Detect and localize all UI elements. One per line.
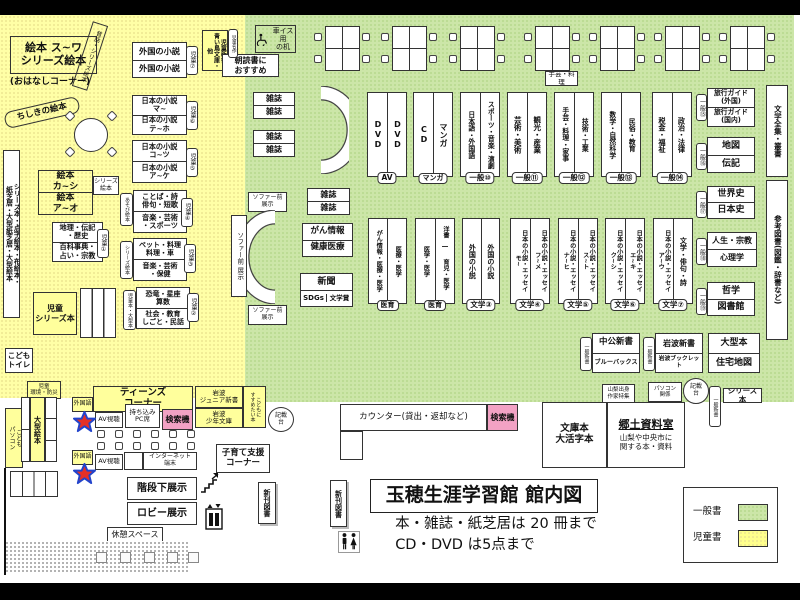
shelf-label: 大型本 bbox=[709, 334, 759, 353]
shelf-label: 図書館 bbox=[708, 299, 754, 316]
shelf-general-10: 日本語・外国語 スポーツ・音楽・演劇 一般⑩ bbox=[460, 92, 500, 177]
shelf-tag: 一般⑪ bbox=[512, 172, 543, 184]
chair bbox=[381, 33, 389, 41]
shelf-label: 育児・医学 bbox=[442, 246, 449, 303]
shelf-label: 文学全集・叢書 bbox=[773, 105, 782, 158]
chair bbox=[719, 55, 727, 63]
shelf-label: 児童 シリーズ本 bbox=[35, 304, 75, 322]
shelf-label: 日本の小説・エッセイ モ~ bbox=[511, 219, 530, 303]
av-viewing-seat: AV視聴 bbox=[95, 454, 123, 470]
av-viewing-seat: AV視聴 bbox=[95, 412, 123, 428]
tag-general-18: 一般⑱ bbox=[696, 238, 707, 265]
shelf-medical-1: がん情報・医療・医学 医療・医学 医育 bbox=[368, 218, 407, 304]
shelf-label: 岩波 少年文庫 bbox=[206, 411, 232, 426]
rest-seat bbox=[120, 552, 131, 563]
shelf-japanese-novels-4: 日本の小説・エッセイ モ~ 日本の小説・エッセイ フ~メ 文学④ bbox=[510, 218, 550, 304]
shelf-label: ペット・料理 料理・車 bbox=[134, 239, 186, 259]
shelf-words-poetry-kids: ことば・詩 俳句・短歌 音楽・芸術 ・スポーツ bbox=[133, 190, 187, 233]
shelf-label: 税金・福祉 bbox=[653, 93, 672, 176]
tag-general-16: 一般⑯ bbox=[696, 143, 707, 170]
shelf-new-books: 新刊図書 bbox=[330, 480, 347, 527]
shelf-kids-series-books: 児童 シリーズ本 bbox=[33, 292, 77, 335]
shelf-label: 日本の小説 マ~ bbox=[133, 96, 186, 115]
tag-label: 一般⑲ bbox=[699, 293, 705, 311]
shelf-tag: 一般⑬ bbox=[606, 172, 637, 184]
star-marker-icon bbox=[73, 410, 96, 433]
chair bbox=[97, 430, 105, 438]
shelf-label: 芸術・美術 bbox=[508, 93, 527, 176]
shelf-medical-2: 医学・医学 洋書 育児・医学 医育 bbox=[415, 218, 455, 304]
shelf-label: 心理学 bbox=[708, 249, 756, 266]
map-title: 玉穂生涯学習館 館内図 bbox=[370, 479, 598, 513]
tag-label: 児童名作 bbox=[231, 35, 236, 53]
shelf-label: 観光・産業 bbox=[527, 93, 547, 176]
shelf-label: 日本史 bbox=[708, 202, 754, 218]
shelf-label: 社会・教育 しごと・民話 bbox=[137, 308, 189, 329]
shelf-label: 日本の小説 テ~ホ bbox=[133, 115, 186, 135]
cell bbox=[46, 418, 56, 439]
rest-seat bbox=[144, 552, 155, 563]
shelf-tag: 一般⑫ bbox=[559, 172, 590, 184]
shelf-label: 音楽・芸術 ・保健 bbox=[134, 259, 186, 280]
tag-general-shinsho: 一般新書 bbox=[643, 337, 655, 371]
shelf-series-books: シリーズ本 bbox=[723, 388, 762, 403]
label: 記載 台 bbox=[690, 384, 702, 398]
chair bbox=[362, 55, 370, 63]
chair bbox=[497, 33, 505, 41]
shelf-series-braille-books: シリーズ本・点字絵本・布絵本・ 紙芝居・大型紙芝居・大型絵本 bbox=[3, 150, 20, 318]
writing-stand: 記載 台 bbox=[268, 407, 294, 432]
tag-jido-5: 児童⑤ bbox=[186, 148, 198, 177]
tag-general-19: 一般⑲ bbox=[696, 288, 707, 315]
chair bbox=[314, 55, 322, 63]
chair bbox=[429, 55, 437, 63]
shelf-chuko-shinsho: 中公新書 ブルーバックス bbox=[592, 333, 640, 373]
shelf-recommended-for-kids: こどもに すすめたい本 bbox=[243, 386, 266, 428]
shelf-reference-books: 参考図書(図鑑・辞書など) bbox=[766, 180, 788, 340]
label: こども パソコン bbox=[7, 426, 21, 450]
shelf-tag: 文学④ bbox=[515, 299, 544, 311]
chair bbox=[133, 442, 141, 450]
byod-pc-seat: 持ち込み PC席 bbox=[125, 404, 160, 428]
shelf-label: パソコン 関係 bbox=[654, 386, 676, 399]
stairs-icon bbox=[199, 472, 221, 494]
legend-row-children: 児童書 bbox=[684, 530, 777, 547]
shelf-label: 政治・法律 bbox=[672, 93, 692, 176]
tag-jido-7: 児童⑦ bbox=[186, 46, 198, 75]
shelf-foreign-novels: 外国の小説 外国の小説 文学③ bbox=[462, 218, 500, 304]
chair bbox=[187, 442, 195, 450]
shelf-general-14: 税金・福祉 政治・法律 一般⑭ bbox=[652, 92, 692, 177]
floor-map: 絵本 ス~ワ シリーズ絵本 昔話・シリーズ絵本 (おはなしコーナー) ちしきの絵… bbox=[0, 0, 800, 600]
label: (おはなしコーナー) bbox=[10, 77, 90, 87]
shelf-label: 岩波 ジュニア新書 bbox=[200, 390, 239, 405]
shelf-label: 中公新書 bbox=[593, 334, 639, 353]
tag-general-shinsho: 一般新書 bbox=[709, 386, 721, 427]
shelf-label: 大型絵本 bbox=[33, 416, 41, 444]
tag-label: 児童⑥ bbox=[189, 106, 195, 125]
counter-label: カウンター(貸出・返却など) bbox=[359, 413, 468, 423]
shelf-newspapers: 新聞 SDGs 文学賞 bbox=[300, 273, 353, 307]
shelf-label: がん情報 bbox=[303, 224, 352, 240]
shelf-label: 文庫本 大活字本 bbox=[555, 424, 593, 446]
shelf-label: 雑誌 bbox=[254, 93, 294, 105]
shelf-tag: 一般⑩ bbox=[465, 172, 494, 184]
tag-shugei-ryori: 手芸・料理 bbox=[545, 71, 578, 86]
map-legend: 一般書 児童書 bbox=[683, 487, 778, 563]
shelf-label: 外国の小説 bbox=[463, 219, 481, 303]
tag-jidobon-oogata: 児童本・大型本 bbox=[123, 290, 136, 330]
tag-label: 児童② bbox=[190, 298, 196, 317]
tag-general-15: 一般⑮ bbox=[696, 94, 707, 121]
shelf-label: 手芸・料理・家事 bbox=[555, 93, 574, 176]
chair bbox=[169, 442, 177, 450]
label: 車イス用 の机 bbox=[271, 27, 295, 51]
shelf-tag: 医育 bbox=[377, 300, 399, 311]
tag-asobi-ehon: あそび絵本 bbox=[120, 193, 133, 226]
writing-stand: 記載 台 bbox=[683, 378, 709, 404]
chair bbox=[151, 442, 159, 450]
screen-bottom-bar bbox=[0, 583, 800, 600]
chair bbox=[589, 55, 597, 63]
shelf-new-books: 新刊図書 bbox=[258, 482, 276, 524]
tag-jido-6: 児童⑥ bbox=[186, 101, 198, 130]
legend-swatch-yellow bbox=[738, 530, 768, 547]
room-title: 郷土資料室 bbox=[619, 419, 674, 432]
tag-general-17: 一般⑰ bbox=[696, 191, 707, 218]
chair bbox=[314, 33, 322, 41]
bench-sofa bbox=[10, 471, 58, 497]
empty-booth bbox=[124, 452, 143, 470]
elevator-icon bbox=[205, 504, 223, 530]
reading-table bbox=[392, 26, 427, 71]
search-terminal: 検索機 bbox=[487, 404, 518, 431]
tag-label: あそび絵本 bbox=[124, 197, 129, 222]
shelf-label: シリーズ本・点字絵本・布絵本・ 紙芝居・大型紙芝居・大型絵本 bbox=[4, 183, 20, 285]
shelf-label: ことば・詩 俳句・短歌 bbox=[134, 191, 186, 211]
legend-row-general: 一般書 bbox=[684, 504, 777, 521]
shelf-label: 医学・医学 bbox=[416, 219, 435, 303]
shelf-large-books-maps: 大型本 住宅地図 bbox=[708, 333, 760, 373]
legend-swatch-green bbox=[738, 504, 768, 521]
shelf-label: 外国の小説 bbox=[133, 43, 186, 60]
shelf-label: ブルーバックス bbox=[593, 353, 639, 373]
shelf-pets-cooking-kids: ペット・料理 料理・車 音楽・芸術 ・保健 bbox=[133, 238, 187, 281]
sofa-front-display: ソファー前 展示 bbox=[248, 305, 287, 325]
shelf-iwanami-shonen: 岩波 少年文庫 bbox=[195, 408, 243, 428]
shelf-label: 朝読書に おすすめ bbox=[235, 56, 267, 74]
local-materials-room: 郷土資料室 山梨や中央市に 関する本・資料 bbox=[607, 402, 685, 468]
tag-kids-masterpieces: 児童名作 bbox=[228, 29, 238, 58]
rest-seat bbox=[167, 552, 178, 563]
shelf-general-11: 芸術・美術 観光・産業 一般⑪ bbox=[507, 92, 547, 177]
cell bbox=[22, 429, 29, 461]
shelf-label: 日本の小説・エッセイ ク~シ bbox=[606, 219, 625, 303]
shelf-tag: 文学⑤ bbox=[563, 299, 592, 311]
chair bbox=[151, 430, 159, 438]
round-table bbox=[74, 118, 108, 152]
shelf-label: 恐竜・星座 算数 bbox=[137, 288, 189, 308]
service-counter: カウンター(貸出・返却など) bbox=[340, 404, 487, 431]
chair bbox=[589, 33, 597, 41]
shelf-label: 外国語 bbox=[73, 454, 91, 461]
chair bbox=[169, 430, 177, 438]
shelf-general-13: 数学・自然科学 民俗・教育 一般⑬ bbox=[601, 92, 641, 177]
shelf-pc-related: パソコン 関係 bbox=[648, 382, 682, 402]
wheelchair-icon bbox=[256, 33, 269, 46]
lending-rule-books: 本・雑誌・紙芝居は 20 冊まで bbox=[386, 514, 606, 534]
tag-label: 一般新書 bbox=[647, 344, 652, 364]
shelf-dvd: DVD DVD AV bbox=[367, 92, 407, 177]
shelf-yamanashi-authors: 山梨出身 作家特集 bbox=[602, 384, 635, 403]
shelf-label: SDGs bbox=[301, 294, 327, 302]
rest-seat bbox=[96, 552, 107, 563]
tag-jido-1: 児童① bbox=[97, 229, 109, 258]
shelf-label: マンガ bbox=[433, 93, 453, 176]
shelf-magazines: 雑誌 雑誌 bbox=[307, 188, 350, 215]
shelf-tag: 文学⑥ bbox=[610, 299, 639, 311]
shelf-label: 岩波ブックレット bbox=[656, 353, 702, 373]
shelf-label: 参考図書(図鑑・辞書など) bbox=[773, 215, 782, 304]
shelf-label: 旅行ガイド (国内) bbox=[708, 107, 754, 126]
shelf-label: DVD bbox=[387, 93, 407, 176]
shelf-label: 山梨出身 作家特集 bbox=[607, 387, 629, 400]
shelf-label: がん情報・医療・医学 bbox=[369, 219, 387, 303]
label: 階段下展示 bbox=[137, 483, 187, 495]
shelf-label: 絵本 カ~シ bbox=[39, 171, 92, 192]
chair bbox=[702, 33, 710, 41]
shelf-literature-collections: 文学全集・叢書 bbox=[766, 85, 788, 177]
shelf-paperbacks-large-print: 文庫本 大活字本 bbox=[542, 402, 607, 468]
shelf-label: 洋書 bbox=[442, 219, 449, 246]
cell bbox=[22, 398, 29, 429]
shelf-cells bbox=[45, 397, 57, 462]
shelf-label: 絵本 ス~ワ シリーズ絵本 bbox=[21, 42, 86, 67]
shelf-japanese-novels-5: 日本の小説・エッセイ ナ~ヒ 日本の小説・エッセイ ス~ト 文学⑤ bbox=[558, 218, 598, 304]
chair bbox=[429, 33, 437, 41]
label: ロビー展示 bbox=[137, 508, 187, 520]
shelf-label: 住宅地図 bbox=[709, 353, 759, 373]
shelf-label: 外国語 bbox=[73, 401, 91, 408]
shelf-label: 雑誌 bbox=[254, 143, 294, 156]
ohanashi-corner-label: (おはなしコーナー) bbox=[8, 76, 92, 88]
shelf-label: 地理・伝記 ・歴史 bbox=[53, 223, 102, 242]
label: 子育て支援 コーナー bbox=[222, 449, 265, 469]
tag-jido-3: 児童③ bbox=[184, 244, 196, 273]
shelf-label: 日本の小説・エッセイ フ~メ bbox=[530, 219, 550, 303]
shelf-label: DVD bbox=[368, 93, 387, 176]
shelf-label: 外国の小説 bbox=[481, 219, 500, 303]
shelf-series-ehon-small: シリーズ 絵本 bbox=[93, 176, 119, 195]
title-text: 玉穂生涯学習館 館内図 bbox=[386, 485, 583, 507]
shelf-label: 哲学 bbox=[708, 283, 754, 299]
shelf-label: 外国の小説 bbox=[133, 60, 186, 78]
shelf-label: 民俗・教育 bbox=[621, 93, 641, 176]
shelf-tag: 文学⑦ bbox=[658, 299, 687, 311]
tag-jido-2: 児童② bbox=[187, 293, 199, 322]
shelf-label: 世界史 bbox=[708, 187, 754, 202]
reading-table bbox=[535, 26, 570, 71]
shelf-ehon-ka-shi: 絵本 カ~シ 絵本 ア~オ bbox=[38, 170, 93, 215]
shelf-label: 数学・自然科学 bbox=[602, 93, 621, 176]
shelf-label: 新聞 bbox=[301, 274, 352, 290]
tag-label: 手芸・料理 bbox=[546, 71, 577, 86]
cell bbox=[46, 398, 56, 418]
shelf-label: 日本の小説 コ~ツ bbox=[133, 141, 186, 161]
label: 持ち込み PC席 bbox=[130, 409, 156, 424]
reading-table bbox=[325, 26, 360, 71]
chair bbox=[115, 430, 123, 438]
label: ソファー前 展示 bbox=[235, 232, 242, 280]
label: 記載 台 bbox=[275, 413, 287, 427]
chair bbox=[362, 33, 370, 41]
rule-text: CD・DVD は5点まで bbox=[395, 537, 535, 554]
chair bbox=[572, 33, 580, 41]
tag-general-shinsho: 一般新書 bbox=[580, 337, 592, 371]
sofa-front-display-vertical: ソファー前 展示 bbox=[231, 215, 247, 297]
under-stairs-display: 階段下展示 bbox=[127, 477, 197, 500]
label: AV視聴 bbox=[98, 416, 119, 423]
shelf-strips bbox=[80, 288, 116, 338]
tag-label: シリーズ絵本 bbox=[124, 245, 129, 275]
search-terminal: 検索機 bbox=[162, 409, 193, 430]
shelf-label: 健康医療 bbox=[303, 240, 352, 257]
reading-table bbox=[600, 26, 635, 71]
shelf-label: 文学・俳句・詩 bbox=[673, 219, 693, 303]
tag-label: 児童③ bbox=[187, 249, 193, 268]
chair bbox=[702, 55, 710, 63]
shelf-label: 新刊図書 bbox=[334, 490, 342, 518]
shelf-foreign-novels-kids: 外国の小説 外国の小説 bbox=[132, 42, 187, 78]
shelf-iwanami-shinsho: 岩波新書 岩波ブックレット bbox=[655, 333, 703, 373]
shelf-tag: 文学③ bbox=[466, 299, 495, 311]
tag-label: 一般⑰ bbox=[699, 196, 705, 214]
tag-label: 児童本・大型本 bbox=[127, 293, 132, 328]
tag-label: 一般⑱ bbox=[699, 243, 705, 261]
tag-label: 児童① bbox=[100, 234, 106, 253]
shelf-label: 岩波新書 bbox=[656, 334, 702, 353]
shelf-world-japan-history: 世界史 日本史 bbox=[707, 186, 755, 219]
shelf-tag: 医育 bbox=[424, 300, 446, 311]
shelf-label: シリーズ 絵本 bbox=[94, 179, 118, 193]
rule-text: 本・雑誌・紙芝居は 20 冊まで bbox=[395, 516, 597, 533]
label: 休憩スペース bbox=[111, 530, 158, 539]
tag-label: 児童⑦ bbox=[189, 51, 195, 70]
chair bbox=[637, 33, 645, 41]
reading-table bbox=[665, 26, 700, 71]
shelf-japanese-novels-kids-5: 日本の小説 コ~ツ 日本の小説 ア~ケ bbox=[132, 140, 187, 183]
shelf-label: 児童 環境・防災 bbox=[30, 384, 58, 397]
tag-label: 児童④ bbox=[184, 203, 190, 222]
shelf-philosophy-library: 哲学 図書館 bbox=[707, 282, 755, 316]
shelf-japanese-novels-6: 日本の小説・エッセイ ク~シ 日本の小説・エッセイ エ~キ 文学⑥ bbox=[605, 218, 645, 304]
label: 検索機 bbox=[166, 415, 190, 424]
shelf-iwanami-junior: 岩波 ジュニア新書 bbox=[195, 386, 243, 408]
shelf-label: シリーズ本 bbox=[724, 388, 761, 403]
label: こども トイレ bbox=[8, 352, 31, 369]
label: 検索機 bbox=[491, 413, 515, 422]
chair bbox=[115, 442, 123, 450]
shelf-life-religion: 人生・宗教 心理学 bbox=[707, 232, 757, 267]
shelf-label: 日本語・外国語 bbox=[461, 93, 480, 176]
shelf-label: 音楽・芸術 ・スポーツ bbox=[134, 211, 186, 232]
shelf-label: 雑誌 bbox=[308, 201, 349, 214]
chair bbox=[449, 33, 457, 41]
shelf-label: 技術・工業 bbox=[574, 93, 594, 176]
label: ソファー前 展示 bbox=[252, 308, 282, 322]
screen-top-bar bbox=[0, 0, 800, 15]
shelf-label: 日本の小説・エッセイ ス~ト bbox=[578, 219, 598, 303]
chair bbox=[767, 33, 775, 41]
label: ソファー前 展示 bbox=[252, 195, 282, 209]
shelf-large-picture-books: 大型絵本 bbox=[30, 397, 45, 462]
legend-label: 児童書 bbox=[693, 533, 722, 544]
shelf-label: 新刊図書 bbox=[263, 489, 271, 517]
shelf-label: 雑誌 bbox=[254, 105, 294, 118]
curved-sofa bbox=[247, 210, 285, 304]
legend-label: 一般書 bbox=[693, 507, 722, 518]
childcare-support-corner: 子育て支援 コーナー bbox=[216, 444, 270, 473]
reading-table bbox=[730, 26, 765, 71]
chair bbox=[97, 442, 105, 450]
chair bbox=[719, 33, 727, 41]
chair bbox=[133, 430, 141, 438]
kids-toilet: こども トイレ bbox=[5, 348, 33, 373]
shelf-label: 地図 bbox=[708, 138, 754, 155]
shelf-tag: マンガ bbox=[419, 173, 448, 184]
shelf-label: 旅行ガイド (外国) bbox=[708, 89, 754, 107]
counter-return-leg bbox=[340, 431, 363, 460]
sofa-front-display: ソファー前 展示 bbox=[248, 192, 287, 212]
shelf-maps-biography: 地図 伝記 bbox=[707, 137, 755, 173]
shelf-japanese-novels-kids-6: 日本の小説 マ~ 日本の小説 テ~ホ bbox=[132, 95, 187, 135]
shelf-cells bbox=[21, 397, 30, 462]
shelf-label: 雑誌 bbox=[308, 189, 349, 201]
wheelchair-desk: 車イス用 の机 bbox=[255, 25, 296, 53]
shelf-label: 百科事典・ 占い・宗教 bbox=[53, 242, 102, 262]
chair bbox=[449, 55, 457, 63]
shelf-tag: 一般⑭ bbox=[657, 172, 688, 184]
shelf-travel-guides: 旅行ガイド (外国) 旅行ガイド (国内) bbox=[707, 88, 755, 127]
chair bbox=[572, 55, 580, 63]
shelf-magazines: 雑誌 雑誌 bbox=[253, 130, 295, 157]
chair bbox=[497, 55, 505, 63]
reading-table bbox=[460, 26, 495, 71]
shelf-label: 日本の小説・エッセイ ナ~ヒ bbox=[559, 219, 578, 303]
shelf-cancer-health-info: がん情報 健康医療 bbox=[302, 223, 353, 257]
cell bbox=[46, 440, 56, 461]
label: AV視聴 bbox=[98, 458, 119, 465]
tag-label: 一般⑯ bbox=[699, 148, 705, 166]
shelf-label: 日本の小説・エッセイ ア~ウ bbox=[654, 219, 673, 303]
chair bbox=[187, 430, 195, 438]
tag-label: 児童⑤ bbox=[189, 153, 195, 172]
shelf-general-12: 手芸・料理・家事 技術・工業 一般⑫ bbox=[554, 92, 594, 177]
lobby-display: ロビー展示 bbox=[127, 502, 197, 525]
wall-line bbox=[4, 468, 6, 575]
shelf-label: 人生・宗教 bbox=[708, 233, 756, 249]
shelf-japanese-novels-7: 日本の小説・エッセイ ア~ウ 文学・俳句・詩 文学⑦ bbox=[653, 218, 693, 304]
shelf-label: こどもに すすめたい本 bbox=[249, 392, 261, 422]
tag-label: 一般新書 bbox=[713, 397, 718, 417]
chair bbox=[654, 55, 662, 63]
shelf-label: スポーツ・音楽・演劇 bbox=[480, 93, 500, 176]
room-description: 山梨や中央市に 関する本・資料 bbox=[620, 434, 673, 451]
tag-jido-4: 児童④ bbox=[181, 198, 193, 227]
shelf-label: 日本の小説 ア~ケ bbox=[133, 161, 186, 182]
shelf-label: 医療・医学 bbox=[387, 219, 406, 303]
chair bbox=[524, 55, 532, 63]
